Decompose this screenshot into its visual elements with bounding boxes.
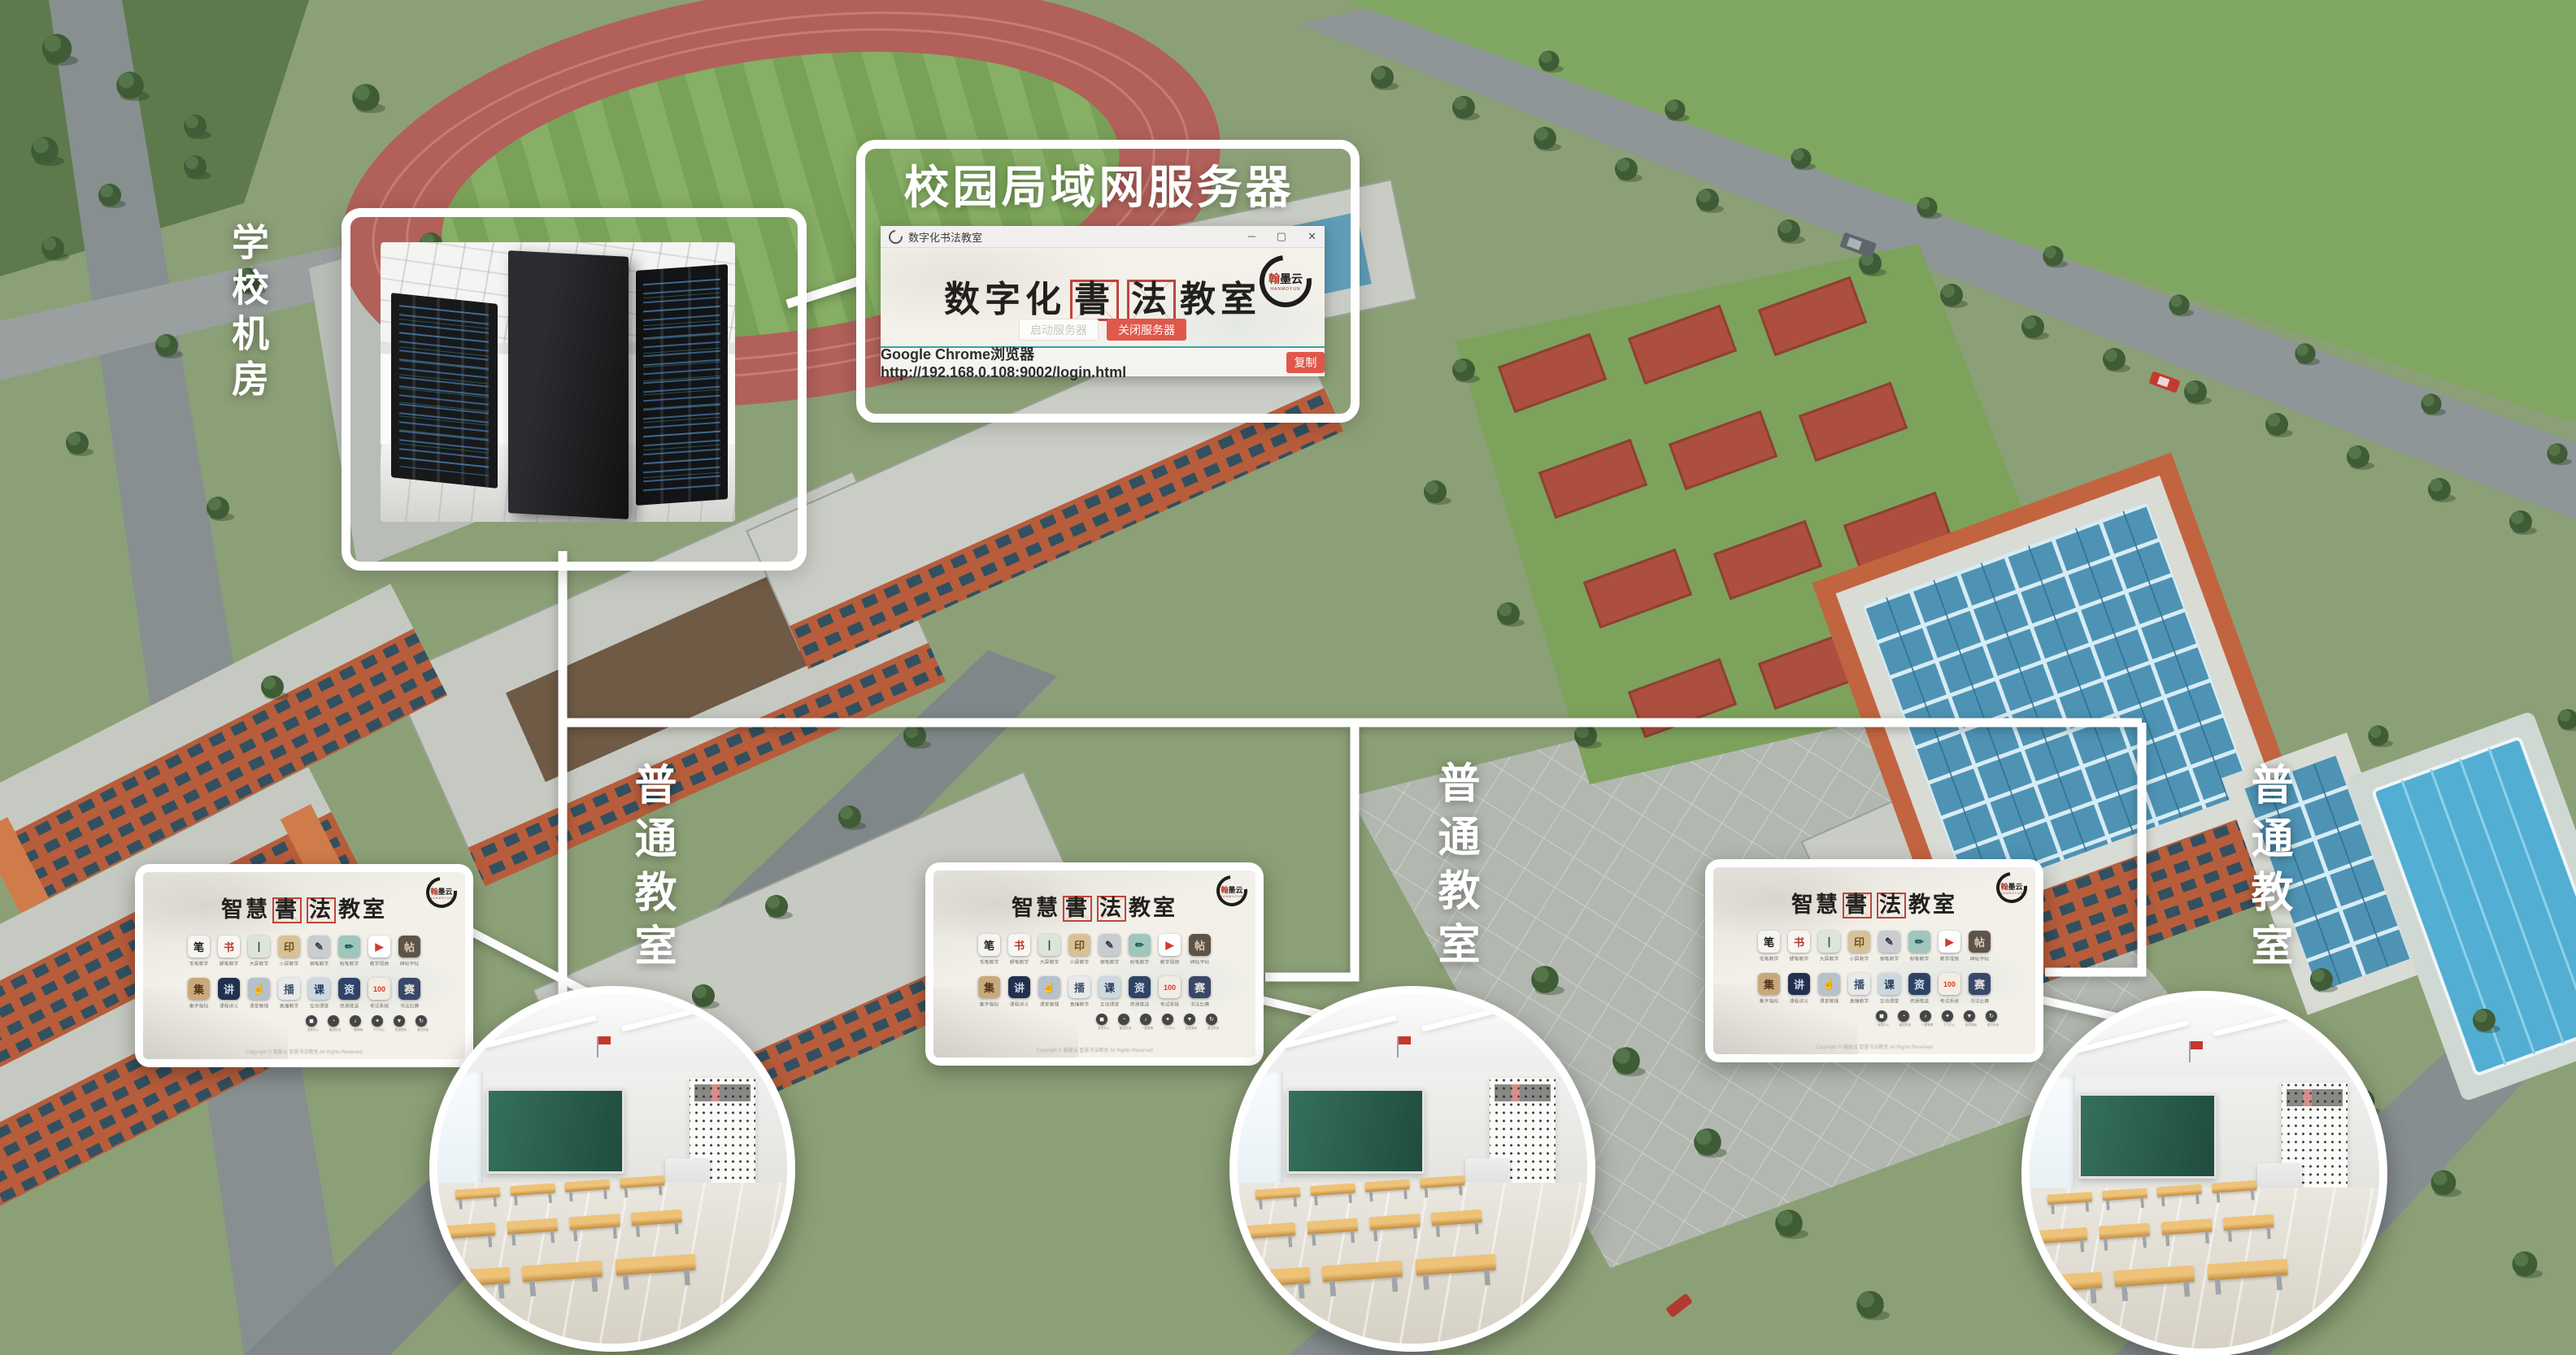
app-tile-label: 资源推送 xyxy=(1909,997,1929,1005)
app-tile-label: 考试系统 xyxy=(1939,997,1959,1005)
app-tile[interactable]: 赛书法比赛 xyxy=(1189,976,1211,1008)
digital-calligraphy-title: 数字化書法教室 xyxy=(881,270,1325,322)
app-tile[interactable]: 笔毛笔教学 xyxy=(188,936,210,967)
app-tile-label: 毛笔教学 xyxy=(189,960,208,967)
copyright-line: Copyright © 翰墨云 智慧书法教室 All Rights Reserv… xyxy=(1713,1043,2035,1050)
app-tile-label: 课程讲义 xyxy=(219,1002,238,1010)
app-tile[interactable]: ☝课堂管理 xyxy=(1818,973,1840,1005)
app-tile-label: 毛笔教学 xyxy=(1759,955,1778,962)
app-tile-label: 教学视频 xyxy=(1939,955,1959,962)
line-drop-right xyxy=(2045,723,2142,972)
app-tile-label: 教学视频 xyxy=(1160,958,1179,966)
app-tile-label: 课堂管理 xyxy=(1039,1001,1059,1008)
system-icon[interactable]: ✦个人中心 xyxy=(1942,1010,1956,1027)
system-icon[interactable]: ◼消息中心 xyxy=(306,1015,320,1032)
system-icon-row: ◼消息中心◔触控校准♪一键清屏✦个人中心▼检查更新↻退出系统 xyxy=(306,1015,430,1032)
smart-calligraphy-title: 智慧書法教室 xyxy=(933,890,1255,922)
app-tile[interactable]: ✏粉笔教学 xyxy=(1129,934,1151,966)
red-flag xyxy=(1399,1036,1411,1044)
app-tile[interactable]: 笔毛笔教学 xyxy=(978,934,1000,966)
close-button[interactable]: ✕ xyxy=(1308,230,1316,243)
app-tile-label: 考试系统 xyxy=(1160,1001,1179,1008)
smart-calligraphy-screen: 翰墨云HANMOYUN 智慧書法教室 笔毛笔教学书硬笔教学丨大屏教学印小屏教学✎… xyxy=(143,872,465,1059)
app-tile-label: 互动课堂 xyxy=(1879,997,1899,1005)
app-tile[interactable]: ✏粉笔教学 xyxy=(338,936,360,967)
app-tile[interactable]: 课互动课堂 xyxy=(308,978,330,1010)
line-drop-middle xyxy=(1265,723,1355,977)
app-tile[interactable]: 丨大屏教学 xyxy=(1038,934,1060,966)
app-tile-label: 资源推送 xyxy=(339,1002,359,1010)
app-tile[interactable]: 播直播教学 xyxy=(278,978,300,1010)
app-tile-label: 粉笔教学 xyxy=(339,960,359,967)
system-icon[interactable]: ◔触控校准 xyxy=(1898,1010,1912,1027)
system-icon[interactable]: ◼消息中心 xyxy=(1876,1010,1891,1027)
chalkboard xyxy=(1286,1088,1424,1174)
chalkboard xyxy=(2078,1093,2216,1179)
smart-calligraphy-title: 智慧書法教室 xyxy=(143,892,465,923)
window-title: 数字化书法教室 xyxy=(908,229,1248,245)
classroom-screen-panel-3: 翰墨云HANMOYUN 智慧書法教室 笔毛笔教学书硬笔教学丨大屏教学印小屏教学✎… xyxy=(1705,859,2043,1062)
app-tile-label: 直播教学 xyxy=(1849,997,1869,1005)
app-tile[interactable]: 100考试系统 xyxy=(368,978,390,1010)
app-grid: 笔毛笔教学书硬笔教学丨大屏教学印小屏教学✎钢笔教学✏粉笔教学▶教学视频帖碑帖字帖… xyxy=(1713,931,2035,1005)
app-tile[interactable]: 书硬笔教学 xyxy=(1788,931,1810,962)
system-icon-row: ◼消息中心◔触控校准♪一键清屏✦个人中心▼检查更新↻退出系统 xyxy=(1096,1014,1221,1031)
app-tile-label: 直播教学 xyxy=(1069,1001,1089,1008)
app-tile[interactable]: ☝课堂管理 xyxy=(1038,976,1060,1008)
app-tile[interactable]: 资资源推送 xyxy=(338,978,360,1010)
grid-box-char: 書 xyxy=(272,897,302,923)
app-tile[interactable]: ✏粉笔教学 xyxy=(1908,931,1930,962)
app-tile[interactable]: 集集字临帖 xyxy=(1758,973,1780,1005)
stop-server-button[interactable]: 关闭服务器 xyxy=(1107,319,1186,341)
browser-window: 数字化书法教室 ─ ▢ ✕ 翰墨云HANMOYUN 数字化書法教室 启动服务器 … xyxy=(881,226,1325,376)
app-tile-label: 课程讲义 xyxy=(1009,1001,1029,1008)
app-tile-label: 课堂管理 xyxy=(249,1002,268,1010)
app-grid: 笔毛笔教学书硬笔教学丨大屏教学印小屏教学✎钢笔教学✏粉笔教学▶教学视频帖碑帖字帖… xyxy=(933,934,1255,1008)
system-icon[interactable]: ♪一键清屏 xyxy=(1920,1010,1934,1027)
app-tile[interactable]: ✎钢笔教学 xyxy=(308,936,330,967)
app-tile[interactable]: 赛书法比赛 xyxy=(1969,973,1991,1005)
smart-calligraphy-screen: 翰墨云HANMOYUN 智慧書法教室 笔毛笔教学书硬笔教学丨大屏教学印小屏教学✎… xyxy=(1713,867,2035,1054)
app-tile[interactable]: 丨大屏教学 xyxy=(248,936,270,967)
classroom-screen-panel-2: 翰墨云HANMOYUN 智慧書法教室 笔毛笔教学书硬笔教学丨大屏教学印小屏教学✎… xyxy=(925,862,1264,1066)
grid-box-char: 法 xyxy=(1127,280,1176,321)
system-icon[interactable]: ↻退出系统 xyxy=(416,1015,430,1032)
system-icon[interactable]: ♪一键清屏 xyxy=(350,1015,364,1032)
label-ordinary-classroom-1: 普通教室 xyxy=(621,762,682,977)
app-tile-label: 集字临帖 xyxy=(189,1002,208,1010)
grid-box-char: 法 xyxy=(1097,896,1126,922)
app-tile[interactable]: 讲课程讲义 xyxy=(218,978,240,1010)
copyright-line: Copyright © 翰墨云 智慧书法教室 All Rights Reserv… xyxy=(143,1048,465,1055)
grid-box-char: 書 xyxy=(1070,280,1119,321)
app-tile-label: 小屏教学 xyxy=(279,960,298,967)
app-tile[interactable]: 资资源推送 xyxy=(1129,976,1151,1008)
app-tile[interactable]: 集集字临帖 xyxy=(978,976,1000,1008)
app-tile[interactable]: 资资源推送 xyxy=(1908,973,1930,1005)
app-tile-label: 教学视频 xyxy=(369,960,389,967)
app-tile-label: 集字临帖 xyxy=(1759,997,1778,1005)
browser-body: 翰墨云HANMOYUN 数字化書法教室 启动服务器 关闭服务器 xyxy=(881,249,1325,347)
classroom-photo-1 xyxy=(429,986,795,1352)
app-tile-label: 大屏教学 xyxy=(1039,958,1059,966)
classroom-screen-panel-1: 翰墨云HANMOYUN 智慧書法教室 笔毛笔教学书硬笔教学丨大屏教学印小屏教学✎… xyxy=(135,864,473,1067)
app-tile-label: 集字临帖 xyxy=(979,1001,999,1008)
classroom-window xyxy=(437,1071,483,1190)
app-tile-label: 碑帖字帖 xyxy=(1190,958,1209,966)
app-tile[interactable]: 课互动课堂 xyxy=(1878,973,1900,1005)
classroom-window xyxy=(2030,1076,2075,1195)
server-rack-row xyxy=(391,293,498,489)
copyright-line: Copyright © 翰墨云 智慧书法教室 All Rights Reserv… xyxy=(933,1046,1255,1053)
grid-box-char: 書 xyxy=(1063,896,1092,922)
server-url-text: Google Chrome浏览器 http://192.168.0.108:90… xyxy=(881,343,1278,381)
app-tile-label: 硬笔教学 xyxy=(1789,955,1808,962)
app-tile[interactable]: 讲课程讲义 xyxy=(1008,976,1030,1008)
app-tile[interactable]: 100考试系统 xyxy=(1939,973,1960,1005)
app-tile-label: 钢笔教学 xyxy=(1099,958,1119,966)
copy-url-button[interactable]: 复制 xyxy=(1286,352,1325,373)
app-tile-label: 书法比赛 xyxy=(1969,997,1989,1005)
server-rack-front xyxy=(508,250,629,519)
app-tile[interactable]: 帖碑帖字帖 xyxy=(1189,934,1211,966)
app-tile[interactable]: ▶教学视频 xyxy=(1159,934,1181,966)
app-tile-label: 毛笔教学 xyxy=(979,958,999,966)
address-row: Google Chrome浏览器 http://192.168.0.108:90… xyxy=(881,348,1325,376)
grid-box-char: 法 xyxy=(307,897,336,923)
system-icon[interactable]: ▼检查更新 xyxy=(1184,1014,1199,1031)
app-tile-label: 互动课堂 xyxy=(1099,1001,1119,1008)
label-school-server-room: 学校机房 xyxy=(221,223,275,405)
app-grid: 笔毛笔教学书硬笔教学丨大屏教学印小屏教学✎钢笔教学✏粉笔教学▶教学视频帖碑帖字帖… xyxy=(143,936,465,1010)
app-tile[interactable]: 播直播教学 xyxy=(1068,976,1090,1008)
app-tile[interactable]: 100考试系统 xyxy=(1159,976,1181,1008)
app-tile-label: 课程讲义 xyxy=(1789,997,1808,1005)
app-tile[interactable]: ☝课堂管理 xyxy=(248,978,270,1010)
red-flag xyxy=(598,1036,611,1044)
system-icon[interactable]: ✦个人中心 xyxy=(372,1015,386,1032)
app-tile-label: 钢笔教学 xyxy=(1879,955,1899,962)
app-tile-label: 粉笔教学 xyxy=(1909,955,1929,962)
app-tile-label: 小屏教学 xyxy=(1069,958,1089,966)
app-tile[interactable]: 书硬笔教学 xyxy=(1008,934,1030,966)
lan-server-title: 校园局域网服务器 xyxy=(856,151,1342,217)
classroom-window xyxy=(1238,1071,1283,1190)
start-server-button[interactable]: 启动服务器 xyxy=(1019,319,1099,341)
app-tile-label: 大屏教学 xyxy=(249,960,268,967)
app-tile-label: 直播教学 xyxy=(279,1002,298,1010)
app-tile[interactable]: ▶教学视频 xyxy=(368,936,390,967)
app-tile-label: 互动课堂 xyxy=(309,1002,329,1010)
app-tile-label: 硬笔教学 xyxy=(219,960,238,967)
campus-network-diagram: 学校机房 校园局域网服务器 数字化书法教室 ─ ▢ ✕ 翰墨云HANMOYUN … xyxy=(0,0,2576,1355)
system-icon[interactable]: ◔触控校准 xyxy=(1118,1014,1133,1031)
app-tile[interactable]: 丨大屏教学 xyxy=(1818,931,1840,962)
app-tile[interactable]: 赛书法比赛 xyxy=(398,978,420,1010)
classroom-photo-3 xyxy=(2021,991,2387,1355)
app-tile[interactable]: 集集字临帖 xyxy=(188,978,210,1010)
label-ordinary-classroom-3: 普通教室 xyxy=(2238,762,2299,977)
app-tile-label: 课堂管理 xyxy=(1819,997,1838,1005)
browser-titlebar: 数字化书法教室 ─ ▢ ✕ xyxy=(881,226,1325,248)
app-tile-label: 钢笔教学 xyxy=(309,960,329,967)
system-icon[interactable]: ▼检查更新 xyxy=(1964,1010,1978,1027)
app-tile-label: 小屏教学 xyxy=(1849,955,1869,962)
minimize-button[interactable]: ─ xyxy=(1248,230,1255,243)
app-tile-label: 资源推送 xyxy=(1129,1001,1149,1008)
chalkboard xyxy=(486,1088,624,1174)
app-tile[interactable]: 帖碑帖字帖 xyxy=(398,936,420,967)
app-tile[interactable]: 讲课程讲义 xyxy=(1788,973,1810,1005)
app-tile[interactable]: ✎钢笔教学 xyxy=(1099,934,1120,966)
red-flag xyxy=(2191,1041,2203,1049)
system-icon[interactable]: ✦个人中心 xyxy=(1162,1014,1177,1031)
system-icon[interactable]: ↻退出系统 xyxy=(1986,1010,2000,1027)
grid-box-char: 書 xyxy=(1843,892,1872,919)
app-tile[interactable]: 课互动课堂 xyxy=(1099,976,1120,1008)
app-tile[interactable]: 印小屏教学 xyxy=(278,936,300,967)
system-icon[interactable]: ▼检查更新 xyxy=(394,1015,408,1032)
app-tile-label: 粉笔教学 xyxy=(1129,958,1149,966)
app-tile-label: 大屏教学 xyxy=(1819,955,1838,962)
system-icon-row: ◼消息中心◔触控校准♪一键清屏✦个人中心▼检查更新↻退出系统 xyxy=(1876,1010,2000,1027)
server-rack-row xyxy=(636,264,728,506)
app-tile-label: 碑帖字帖 xyxy=(399,960,419,967)
app-tile[interactable]: 播直播教学 xyxy=(1848,973,1870,1005)
app-tile[interactable]: 书硬笔教学 xyxy=(218,936,240,967)
app-tile[interactable]: 笔毛笔教学 xyxy=(1758,931,1780,962)
maximize-button[interactable]: ▢ xyxy=(1277,230,1286,243)
system-icon[interactable]: ↻退出系统 xyxy=(1206,1014,1221,1031)
app-tile-label: 碑帖字帖 xyxy=(1969,955,1989,962)
title-prefix: 数字化 xyxy=(944,279,1066,320)
smart-calligraphy-screen: 翰墨云HANMOYUN 智慧書法教室 笔毛笔教学书硬笔教学丨大屏教学印小屏教学✎… xyxy=(933,871,1255,1058)
label-ordinary-classroom-2: 普通教室 xyxy=(1425,761,1486,975)
system-icon[interactable]: ◔触控校准 xyxy=(328,1015,342,1032)
system-icon[interactable]: ◼消息中心 xyxy=(1096,1014,1111,1031)
app-tile-label: 书法比赛 xyxy=(1190,1001,1209,1008)
app-tile[interactable]: 印小屏教学 xyxy=(1848,931,1870,962)
smart-calligraphy-title: 智慧書法教室 xyxy=(1713,887,2035,919)
app-tile-label: 书法比赛 xyxy=(399,1002,419,1010)
app-tile[interactable]: ▶教学视频 xyxy=(1939,931,1960,962)
app-tile[interactable]: ✎钢笔教学 xyxy=(1878,931,1900,962)
app-tile-label: 考试系统 xyxy=(369,1002,389,1010)
app-tile[interactable]: 帖碑帖字帖 xyxy=(1969,931,1991,962)
system-icon[interactable]: ♪一键清屏 xyxy=(1140,1014,1155,1031)
app-swirl-icon xyxy=(886,227,906,246)
server-room-photo xyxy=(381,242,735,522)
app-tile-label: 硬笔教学 xyxy=(1009,958,1029,966)
title-suffix: 教室 xyxy=(1180,279,1261,320)
app-tile[interactable]: 印小屏教学 xyxy=(1068,934,1090,966)
classroom-photo-2 xyxy=(1229,986,1595,1352)
grid-box-char: 法 xyxy=(1877,892,1906,919)
